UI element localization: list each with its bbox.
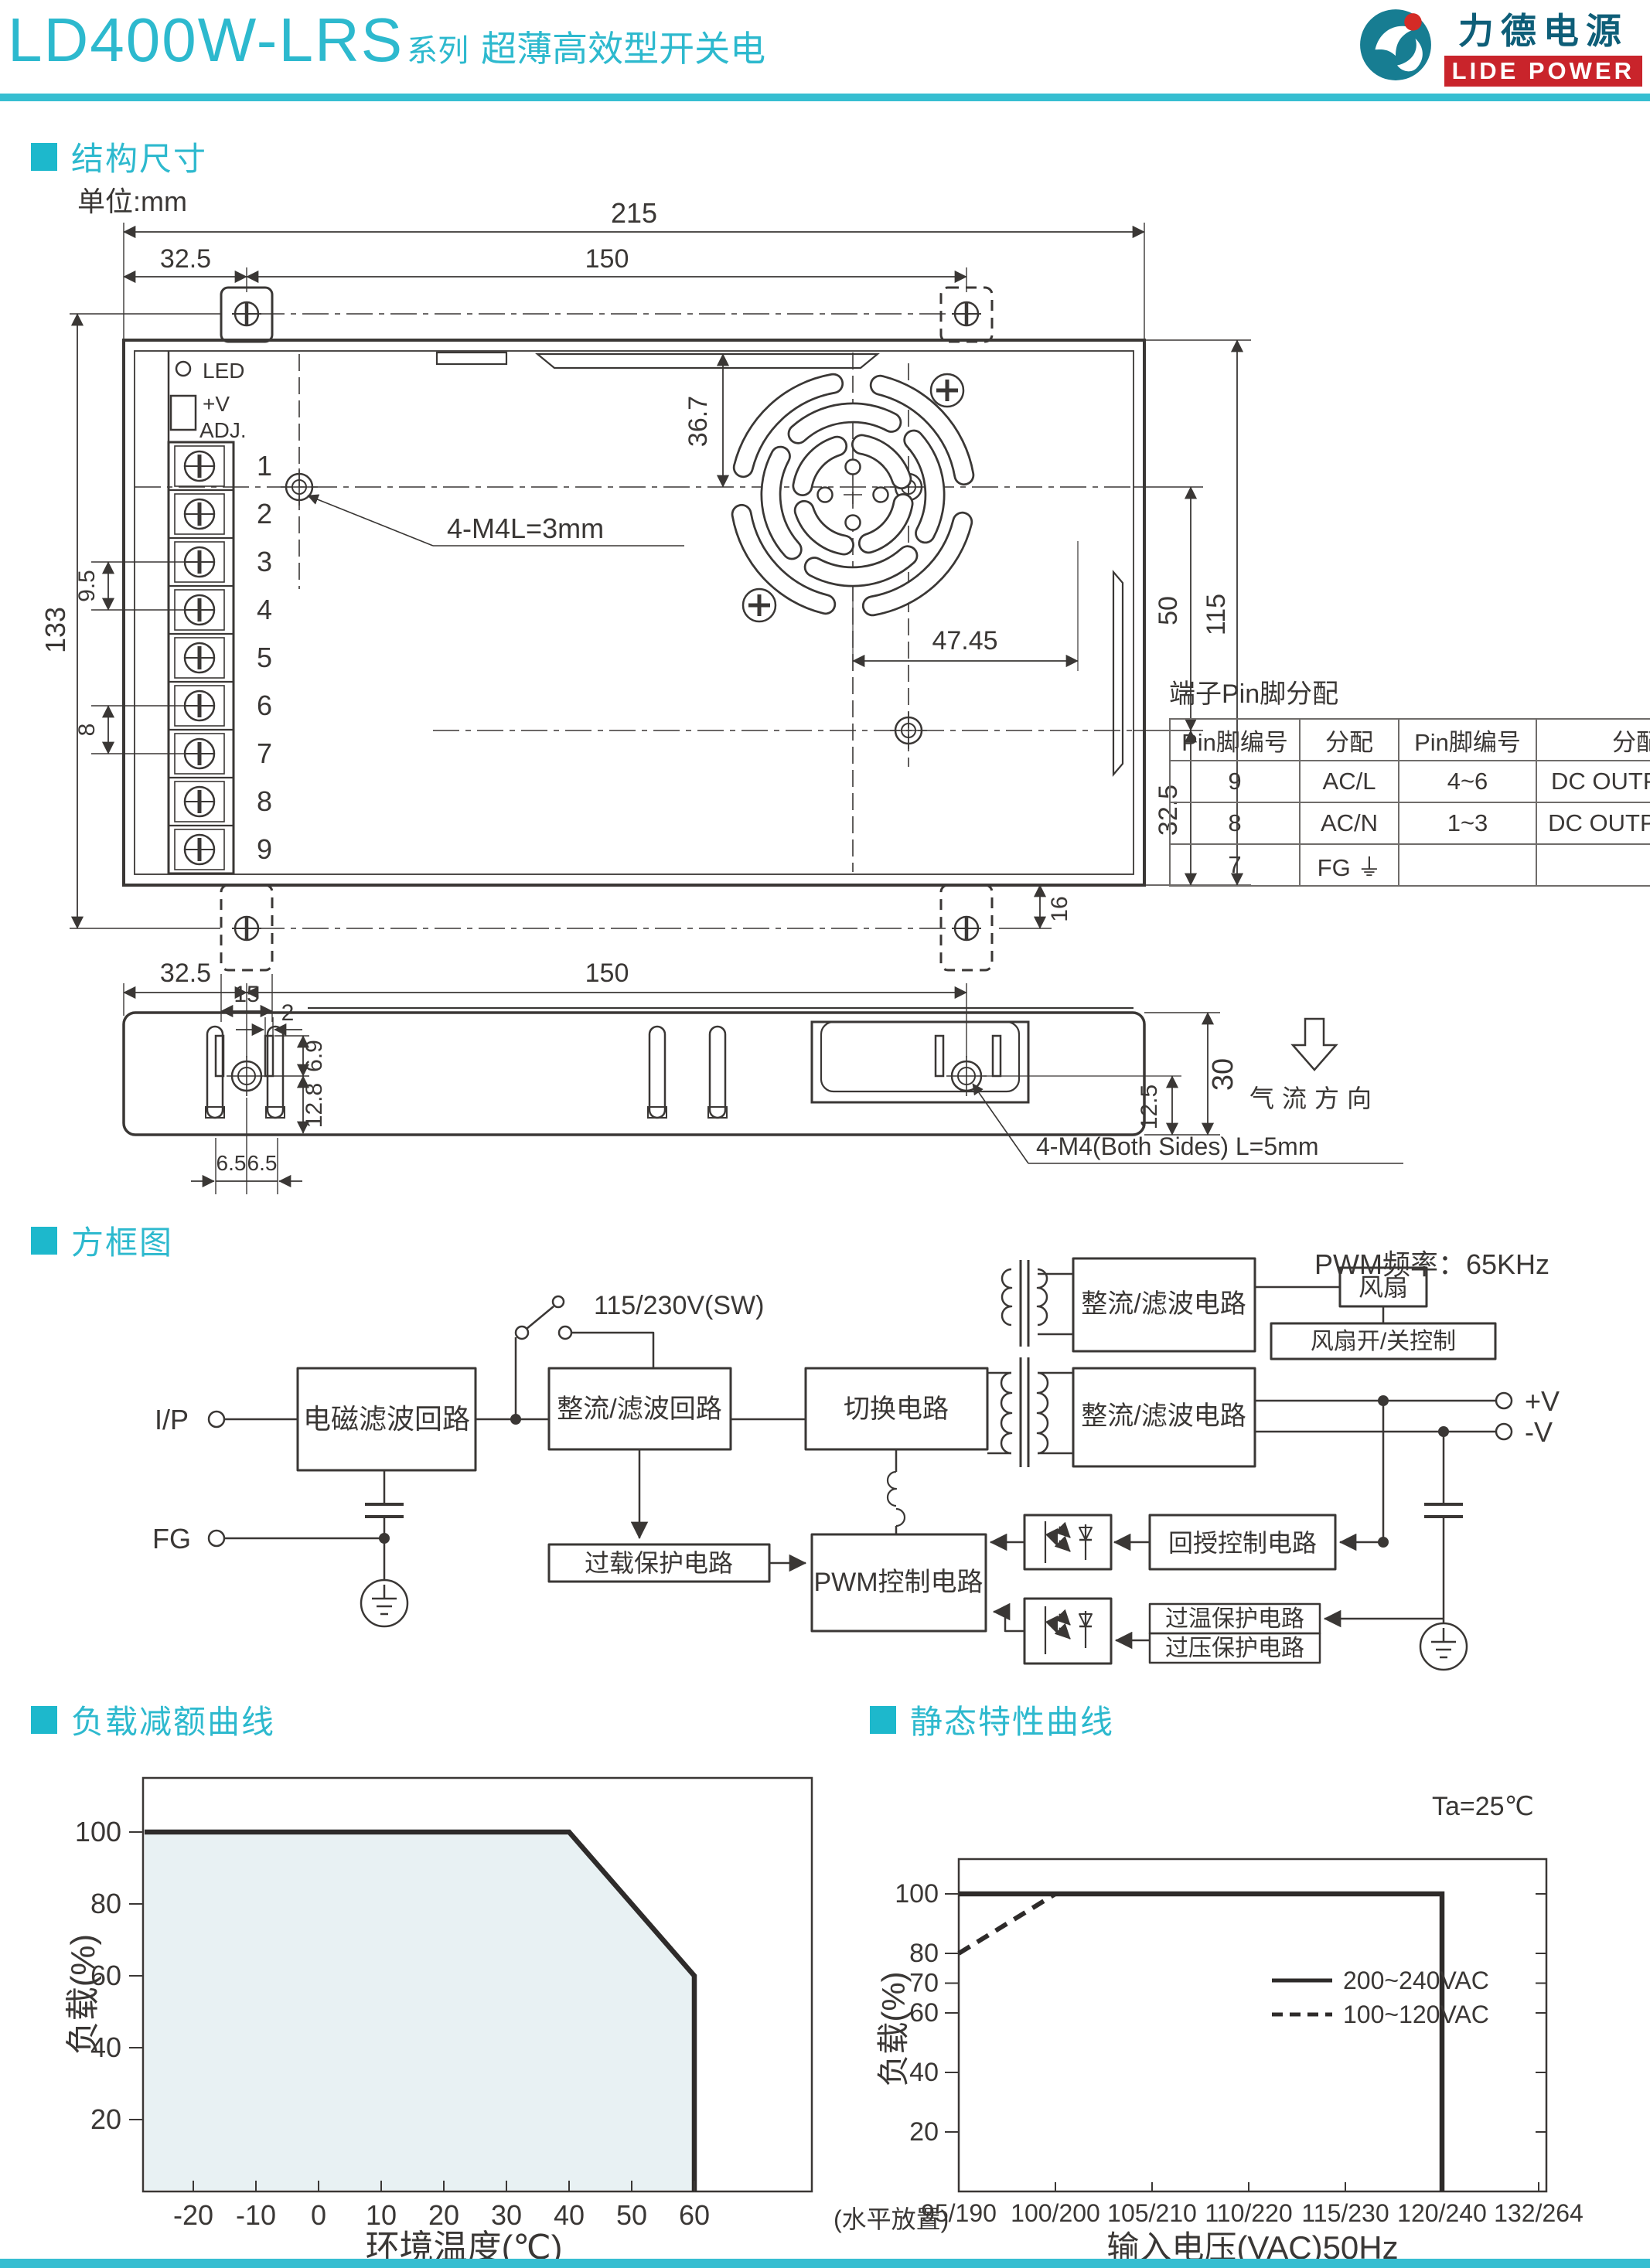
dim-65a: 6.5	[216, 1151, 247, 1175]
chart-note: Ta=25℃	[1432, 1792, 1534, 1821]
section-bullet-icon	[870, 1706, 896, 1734]
pin-table-cell	[1399, 844, 1536, 886]
pin-table-cell: AC/N	[1300, 802, 1399, 844]
ip-terminal-icon	[209, 1412, 224, 1427]
legend-label: 100~120VAC	[1343, 2001, 1489, 2028]
rectifier-fan-label: 整流/滤波电路	[1081, 1289, 1246, 1319]
fan-label: 风扇	[1359, 1273, 1408, 1301]
section-structure-title: 结构尺寸	[71, 133, 207, 180]
optocoupler-icon	[1024, 1515, 1111, 1569]
tab-screw-icon	[952, 301, 981, 326]
pin-table-cell: 1~3	[1399, 802, 1536, 844]
dim-fan-offset: 47.45	[932, 626, 997, 656]
pin-table-cell	[1536, 844, 1650, 886]
table-header-row: Pin脚编号分配Pin脚编号分配	[1170, 719, 1650, 761]
x-tick-label: -20	[173, 2199, 213, 2231]
derating-chart: -20-10010203040506020406080100(水平放置)环境温度…	[64, 1778, 949, 2266]
dim-screw-y: 12.8	[302, 1083, 327, 1128]
ground-icon	[1420, 1623, 1467, 1670]
airflow-label: 气流方向	[1249, 1085, 1379, 1112]
pin-table-header: Pin脚编号	[1170, 719, 1300, 761]
pin-assignment: 端子Pin脚分配 Pin脚编号分配Pin脚编号分配9AC/L4~6DC OUTP…	[1169, 673, 1633, 887]
adj-label: ADJ.	[199, 418, 247, 442]
pin-table-cell: DC OUTPUT -V	[1536, 761, 1650, 802]
x-tick-label: 10	[366, 2199, 397, 2231]
dim-pitch2: 8	[74, 724, 100, 737]
pin-table-title: 端子Pin脚分配	[1169, 673, 1633, 710]
vminus-terminal-icon	[1496, 1424, 1512, 1439]
side-screw-note: 4-M4(Both Sides) L=5mm	[1036, 1132, 1318, 1160]
x-tick-label: 132/264	[1494, 2199, 1584, 2227]
pin-number: 1	[257, 450, 272, 482]
led-label: LED	[203, 359, 244, 383]
product-series: 系列	[407, 26, 469, 70]
x-tick-label: 40	[554, 2199, 585, 2231]
fan-grille-icon	[741, 383, 964, 606]
vplus-terminal-icon	[1496, 1393, 1512, 1408]
block-diagram: PWM频率：65KHz I/P 电磁滤波回路 115/230V(SW) 整流/滤…	[152, 1248, 1560, 1670]
pin-number: 2	[257, 498, 272, 530]
dim-fan-top: 36.7	[684, 396, 713, 447]
m4-hole-icon	[890, 712, 927, 749]
vent-slot-icon	[206, 1027, 727, 1118]
x-tick-label: 0	[311, 2199, 326, 2231]
m4-side-hole-icon	[227, 1056, 267, 1096]
pin-number: 3	[257, 546, 272, 577]
section-block-title: 方框图	[71, 1217, 173, 1264]
dim-span: 150	[585, 244, 629, 274]
series-dashed	[959, 1894, 1055, 1953]
y-axis-title: 负载(%)	[875, 1971, 912, 2086]
dim-screw-bottom: 12.5	[1137, 1085, 1162, 1129]
overload-label: 过载保护电路	[585, 1549, 733, 1577]
x-tick-label: 60	[679, 2199, 710, 2231]
capacitor-icon	[1424, 1504, 1463, 1517]
tab-screw-icon	[232, 916, 261, 941]
section-static-title: 静态特性曲线	[910, 1696, 1114, 1743]
led-indicator-icon	[176, 362, 190, 376]
airflow-arrow-icon	[1293, 1019, 1336, 1070]
feedback-label: 回授控制电路	[1168, 1529, 1317, 1557]
section-bullet-icon	[31, 1706, 57, 1734]
x-tick-label: 115/230	[1301, 2199, 1389, 2227]
pin-table-cell: 8	[1170, 802, 1300, 844]
y-tick-label: 60	[909, 1998, 939, 2028]
x-tick-label: 105/210	[1107, 2199, 1197, 2227]
pin-table: Pin脚编号分配Pin脚编号分配9AC/L4~6DC OUTPUT -V8AC/…	[1169, 718, 1650, 887]
unit-label: 单位:mm	[77, 179, 187, 220]
pin-table-cell: 4~6	[1399, 761, 1536, 802]
adj-pot-icon	[171, 396, 196, 430]
x-tick-label: 110/220	[1205, 2199, 1292, 2227]
pin-table-cell: 7	[1170, 844, 1300, 886]
y-axis-title: 负载(%)	[64, 1934, 102, 2055]
y-tick-label: 100	[895, 1879, 939, 1909]
ovp-label: 过压保护电路	[1165, 1636, 1304, 1661]
static-chart: 95/190100/200105/210110/220115/230120/24…	[875, 1792, 1584, 2266]
section-bullet-icon	[31, 143, 57, 171]
dim-offset: 32.5	[160, 244, 211, 274]
product-model: LD400W-LRS	[8, 5, 404, 76]
x-tick-label: 100/200	[1011, 2199, 1100, 2227]
logo-text-en: LIDE POWER	[1444, 56, 1642, 87]
x-tick-label: 50	[616, 2199, 647, 2231]
derating-area	[145, 1832, 694, 2191]
legend-label: 200~240VAC	[1343, 1967, 1489, 1994]
dim-hole-span: 50	[1154, 596, 1183, 625]
pin-table-header: Pin脚编号	[1399, 719, 1536, 761]
pin-number: 6	[257, 690, 272, 721]
y-tick-label: 70	[909, 1969, 939, 1998]
transformer-icon	[987, 1357, 1073, 1467]
pwm-label: PWM控制电路	[813, 1568, 983, 1597]
dim-pitch: 9.5	[74, 570, 100, 602]
tab-screw-icon	[952, 916, 981, 941]
y-tick-label: 20	[90, 2103, 121, 2135]
dim-tab-height: 16	[1047, 896, 1072, 921]
vplus-label: +V	[1525, 1385, 1560, 1417]
pin-table-header: 分配	[1536, 719, 1650, 761]
pin-table-header: 分配	[1300, 719, 1399, 761]
ip-label: I/P	[155, 1404, 189, 1435]
y-tick-label: 100	[75, 1816, 121, 1847]
fan-ctrl-label: 风扇开/关控制	[1311, 1329, 1456, 1354]
m4-side-hole-icon	[946, 1056, 987, 1096]
pin-number: 9	[257, 833, 272, 865]
pin-table-cell: AC/L	[1300, 761, 1399, 802]
pin-number: 5	[257, 642, 272, 673]
page-title: LD400W-LRS 系列 超薄高效型开关电	[8, 5, 765, 76]
pin-table-cell: DC OUTPUT +V	[1536, 802, 1650, 844]
rectifier-out-label: 整流/滤波电路	[1081, 1401, 1246, 1431]
psu-body-outline	[124, 340, 1144, 885]
transformer-icon	[1002, 1260, 1073, 1347]
section-bullet-icon	[31, 1227, 57, 1255]
switching-label: 切换电路	[844, 1395, 949, 1424]
x-tick-label: 120/240	[1397, 2199, 1487, 2227]
rectifier-in-label: 整流/滤波回路	[557, 1395, 721, 1424]
y-tick-label: 20	[909, 2117, 939, 2147]
tab-screw-icon	[232, 301, 261, 326]
side-view: 32.5 150	[124, 959, 1403, 1194]
section-derating-title: 负载减额曲线	[71, 1696, 275, 1743]
section-block: 方框图	[31, 1217, 173, 1264]
x-tick-label: 30	[491, 2199, 522, 2231]
product-subtitle: 超薄高效型开关电	[481, 21, 765, 72]
connector-window	[812, 1022, 1028, 1102]
x-tick-label: -10	[236, 2199, 276, 2231]
dim-side-offset: 32.5	[160, 959, 211, 988]
otp-label: 过温保护电路	[1165, 1606, 1304, 1632]
section-static: 静态特性曲线	[870, 1696, 1114, 1743]
top-view: 215 32.5 150 LED	[39, 197, 1251, 1022]
pin-number: 4	[257, 594, 272, 625]
vminus-label: -V	[1525, 1416, 1553, 1448]
y-tick-label: 80	[90, 1888, 121, 1919]
table-row: 9AC/L4~6DC OUTPUT -V	[1170, 761, 1650, 802]
table-row: 7FG ⏚	[1170, 844, 1650, 886]
ground-icon	[361, 1580, 407, 1626]
dim-side-span: 150	[585, 959, 629, 988]
table-row: 8AC/N1~3DC OUTPUT +V	[1170, 802, 1650, 844]
capacitor-icon	[365, 1504, 404, 1517]
voltage-switch-icon	[516, 1296, 571, 1339]
fg-terminal-icon	[209, 1531, 224, 1546]
logo-text-cn: 力德电源	[1458, 3, 1628, 54]
section-structure: 结构尺寸	[31, 133, 207, 180]
dim-height: 133	[39, 607, 71, 653]
datasheet-drawing: 215 32.5 150 LED	[0, 0, 1650, 2268]
dim-side-height: 30	[1207, 1058, 1239, 1091]
dim-body-height: 115	[1202, 594, 1231, 635]
adj-label-v: +V	[203, 392, 230, 416]
x-tick-label: 95/190	[921, 2199, 997, 2227]
x-tick-label: 20	[428, 2199, 459, 2231]
dim-65b: 6.5	[247, 1151, 278, 1175]
dim-slot-h: 6.9	[302, 1040, 327, 1072]
company-logo: 力德电源 LIDE POWER	[1358, 3, 1642, 87]
fg-label: FG	[152, 1523, 191, 1555]
m4-hole-icon	[281, 468, 318, 506]
series-solid	[959, 1894, 1442, 2191]
screw-note: 4-M4L=3mm	[447, 513, 604, 544]
pwm-freq-label: PWM频率：65KHz	[1314, 1248, 1549, 1280]
switch-label: 115/230V(SW)	[594, 1291, 764, 1320]
logo-mark-icon	[1358, 7, 1434, 83]
header-divider	[0, 94, 1650, 101]
footer-divider	[0, 2259, 1650, 2268]
psu-side-outline	[124, 1013, 1144, 1135]
y-tick-label: 40	[909, 2058, 939, 2087]
section-derating: 负载减额曲线	[31, 1696, 275, 1743]
phillips-screw-icon	[743, 589, 776, 621]
pin-number: 8	[257, 785, 272, 817]
emi-label: 电磁滤波回路	[303, 1403, 470, 1435]
pin-number: 7	[257, 737, 272, 769]
pin-table-cell: FG ⏚	[1300, 844, 1399, 886]
dim-width: 215	[611, 197, 657, 229]
optocoupler-icon	[1024, 1599, 1111, 1664]
dim-slot-w: 2	[281, 1000, 295, 1026]
y-tick-label: 80	[909, 1939, 939, 1968]
phillips-screw-icon	[931, 374, 963, 407]
pin-table-cell: 9	[1170, 761, 1300, 802]
